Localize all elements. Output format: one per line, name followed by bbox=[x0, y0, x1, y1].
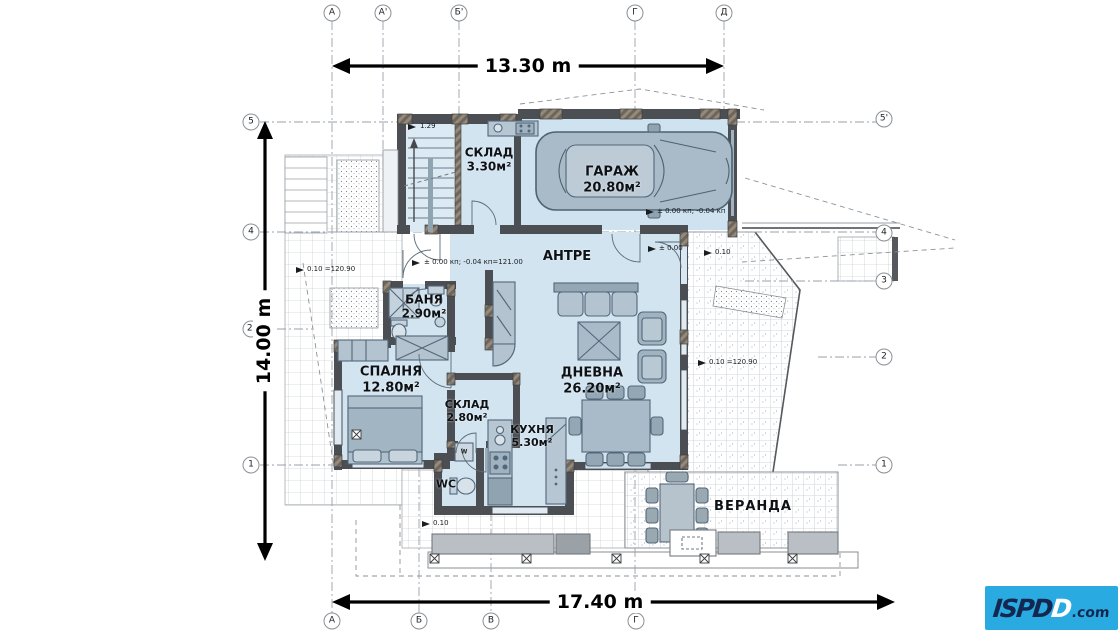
floor-plan-canvas: А А' Б' Г Д А Б В Г 5 4 2' 1 5' 4 3 2 1 … bbox=[0, 0, 1120, 632]
logo-part1: ISPD bbox=[991, 594, 1052, 623]
annotation-walk-level: 0.10 bbox=[433, 519, 449, 527]
room-label-sklad2: СКЛАД 2.80м² bbox=[445, 398, 490, 424]
annotation-porch-level-b: 0.10 bbox=[715, 248, 731, 256]
kitchenette-icon bbox=[488, 121, 538, 136]
grid-marker-bottom-b: Б bbox=[411, 613, 428, 630]
dimension-bottom: 17.40 m bbox=[550, 591, 651, 613]
room-label-wc: WC bbox=[436, 477, 456, 490]
coffee-table-icon bbox=[578, 322, 620, 360]
logo-suffix: .com bbox=[1071, 605, 1111, 621]
room-label-dnevna: ДНЕВНА 26.20м² bbox=[561, 365, 623, 396]
grid-marker-right-4: 4 bbox=[876, 225, 893, 242]
grid-marker-top-g: Г bbox=[627, 5, 644, 22]
grid-marker-left-4: 4 bbox=[243, 224, 260, 241]
grid-marker-bottom-v: В bbox=[483, 613, 500, 630]
grid-marker-right-1: 1 bbox=[876, 457, 893, 474]
grid-marker-top-d: Д bbox=[716, 5, 733, 22]
room-label-banya: БАНЯ 2.90м² bbox=[402, 293, 447, 322]
grid-marker-top-a1: А' bbox=[375, 5, 392, 22]
logo-part2: D bbox=[1050, 594, 1073, 623]
washer-label: W bbox=[461, 449, 468, 456]
grid-marker-left-5: 5 bbox=[243, 114, 260, 131]
dimension-left: 14.00 m bbox=[253, 291, 275, 392]
floor-plan-drawing bbox=[0, 0, 1120, 632]
annotation-garage-level: ± 0.00 кп; -0.04 кп bbox=[657, 207, 725, 215]
room-label-garage: ГАРАЖ 20.80м² bbox=[583, 164, 640, 195]
room-label-kuhnya: КУХНЯ 5.30м² bbox=[510, 423, 554, 449]
brand-logo-text: ISPD D .com bbox=[991, 594, 1111, 623]
grid-marker-right-5: 5' bbox=[876, 111, 893, 128]
grid-marker-right-2: 2 bbox=[876, 349, 893, 366]
brand-logo: ISPD D .com bbox=[985, 586, 1118, 630]
dimension-top: 13.30 m bbox=[478, 55, 579, 77]
room-label-spalnya: СПАЛНЯ 12.80м² bbox=[360, 364, 422, 395]
grid-marker-bottom-g: Г bbox=[628, 613, 645, 630]
grid-marker-left-1: 1 bbox=[243, 457, 260, 474]
annotation-porch-level-a: ± 0.00 bbox=[659, 244, 683, 252]
room-label-sklad1: СКЛАД 3.30м² bbox=[465, 146, 514, 175]
closet-icon bbox=[493, 282, 515, 366]
grid-marker-bottom-a: А bbox=[324, 613, 341, 630]
grid-marker-top-a: А bbox=[324, 5, 341, 22]
annotation-terrace-right-level: 0.10 =120.90 bbox=[709, 358, 757, 366]
grid-marker-right-3: 3 bbox=[876, 273, 893, 290]
grid-marker-top-b1: Б' bbox=[451, 5, 468, 22]
annotation-entry-level: ± 0.00 кп; -0.04 кп=121.00 bbox=[424, 258, 523, 266]
annotation-stairs-level: 1.29 bbox=[420, 122, 436, 130]
annotation-terrace-left-level: 0.10 =120.90 bbox=[307, 265, 355, 273]
room-label-antre: АНТРЕ bbox=[543, 249, 591, 265]
sofa-icon bbox=[554, 283, 638, 316]
room-label-veranda: ВЕРАНДА bbox=[714, 499, 792, 515]
